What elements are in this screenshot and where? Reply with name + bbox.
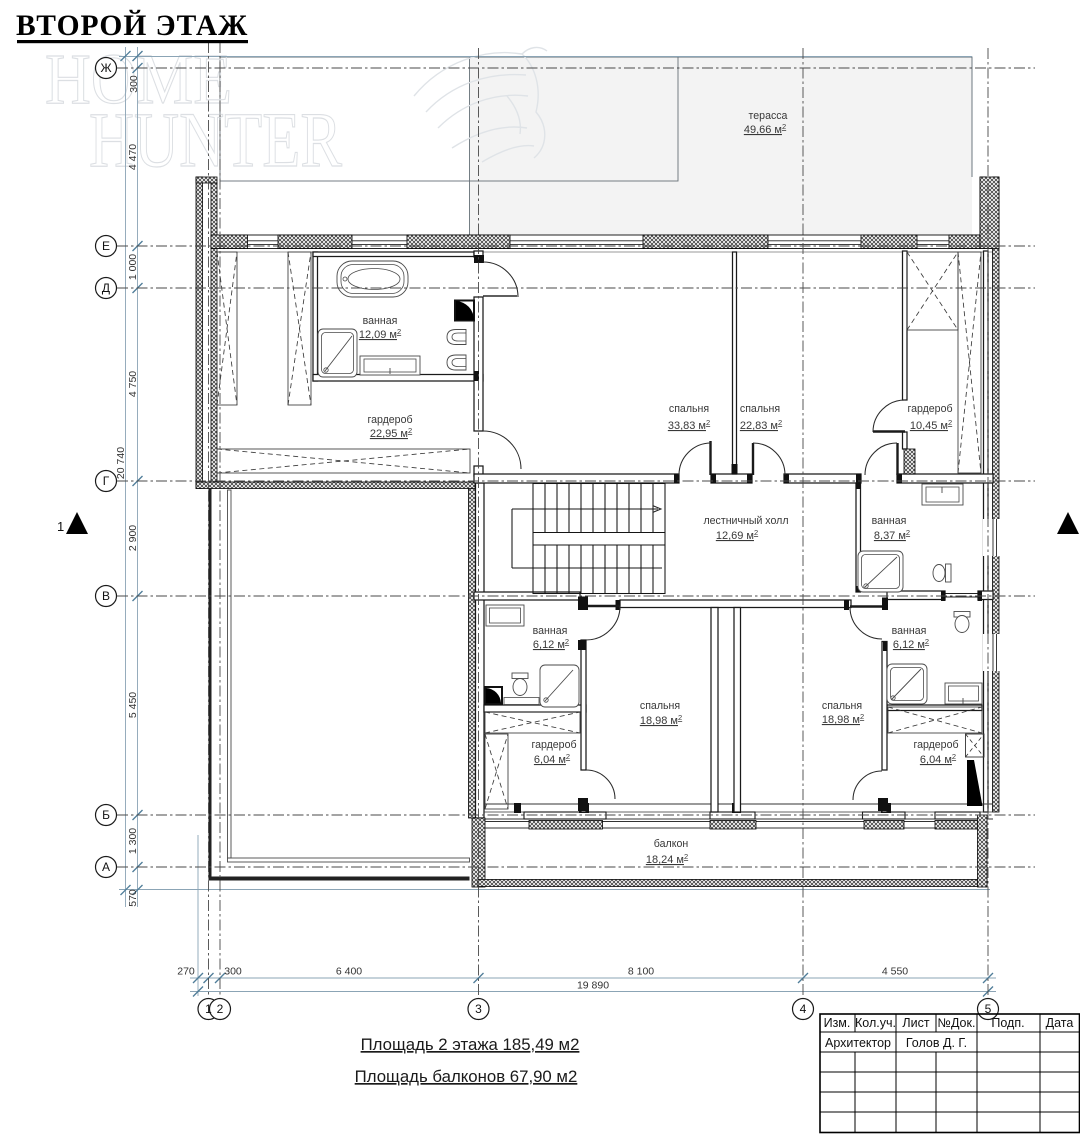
svg-text:ВТОРОЙ ЭТАЖ: ВТОРОЙ ЭТАЖ [16,9,248,42]
svg-text:Голов Д. Г.: Голов Д. Г. [906,1036,967,1050]
svg-text:1: 1 [205,1002,212,1016]
svg-text:2 900: 2 900 [127,525,139,551]
svg-text:2: 2 [217,1002,224,1016]
svg-text:4 750: 4 750 [127,371,139,397]
svg-text:22,95 м2: 22,95 м2 [370,426,412,440]
svg-text:19 890: 19 890 [577,980,609,992]
svg-text:12,69 м2: 12,69 м2 [716,528,758,542]
svg-text:4: 4 [800,1002,807,1016]
svg-text:20 740: 20 740 [115,447,127,479]
svg-text:4 550: 4 550 [882,966,908,978]
svg-text:ванная: ванная [363,315,398,327]
svg-text:570: 570 [127,889,139,907]
svg-text:Архитектор: Архитектор [825,1036,891,1050]
svg-text:Г: Г [103,474,110,488]
svg-text:спальня: спальня [669,403,709,415]
svg-text:49,66 м2: 49,66 м2 [744,122,786,136]
svg-text:терасса: терасса [749,110,788,122]
svg-text:ванная: ванная [892,625,927,637]
svg-text:1: 1 [57,519,64,534]
svg-text:балкон: балкон [654,838,689,850]
svg-text:33,83 м2: 33,83 м2 [668,418,710,432]
svg-text:270: 270 [177,966,195,978]
svg-text:спальня: спальня [640,700,680,712]
svg-text:8 100: 8 100 [628,966,654,978]
svg-text:1 000: 1 000 [127,254,139,280]
svg-text:18,98 м2: 18,98 м2 [822,712,864,726]
svg-text:8,37 м2: 8,37 м2 [874,528,910,542]
svg-text:18,98 м2: 18,98 м2 [640,713,682,727]
svg-text:18,24 м2: 18,24 м2 [646,852,688,866]
svg-text:спальня: спальня [740,403,780,415]
svg-text:Лист: Лист [902,1016,929,1030]
svg-text:В: В [102,589,110,603]
svg-text:22,83 м2: 22,83 м2 [740,418,782,432]
svg-text:гардероб: гардероб [367,414,412,426]
svg-text:12,09 м2: 12,09 м2 [359,327,401,341]
svg-text:4 470: 4 470 [127,144,139,170]
svg-text:300: 300 [128,75,140,93]
svg-text:гардероб: гардероб [531,739,576,751]
svg-text:6 400: 6 400 [336,966,362,978]
svg-text:Площадь балконов 67,90 м2: Площадь балконов 67,90 м2 [355,1067,578,1086]
svg-text:Б: Б [102,808,110,822]
svg-text:лестничный холл: лестничный холл [703,515,788,527]
svg-text:Дата: Дата [1046,1016,1074,1030]
svg-text:Изм.: Изм. [824,1016,851,1030]
svg-text:3: 3 [475,1002,482,1016]
svg-text:№Док.: №Док. [938,1016,976,1030]
svg-text:300: 300 [224,966,242,978]
svg-text:гардероб: гардероб [913,739,958,751]
svg-text:6,12 м2: 6,12 м2 [533,637,569,651]
svg-text:6,04 м2: 6,04 м2 [920,752,956,766]
svg-text:6,12 м2: 6,12 м2 [893,637,929,651]
svg-text:А: А [102,860,110,874]
svg-text:ванная: ванная [872,515,907,527]
svg-text:Е: Е [102,239,110,253]
svg-text:1 300: 1 300 [127,828,139,854]
svg-text:5 450: 5 450 [127,692,139,718]
svg-text:гардероб: гардероб [907,403,952,415]
svg-text:Кол.уч.: Кол.уч. [855,1016,896,1030]
svg-text:Д: Д [102,281,110,295]
svg-text:Площадь 2 этажа 185,49 м2: Площадь 2 этажа 185,49 м2 [361,1035,580,1054]
svg-text:ванная: ванная [533,625,568,637]
svg-text:10,45 м2: 10,45 м2 [910,418,952,432]
svg-text:Подп.: Подп. [991,1016,1024,1030]
svg-text:спальня: спальня [822,700,862,712]
svg-text:Ж: Ж [100,61,111,75]
svg-text:6,04 м2: 6,04 м2 [534,752,570,766]
